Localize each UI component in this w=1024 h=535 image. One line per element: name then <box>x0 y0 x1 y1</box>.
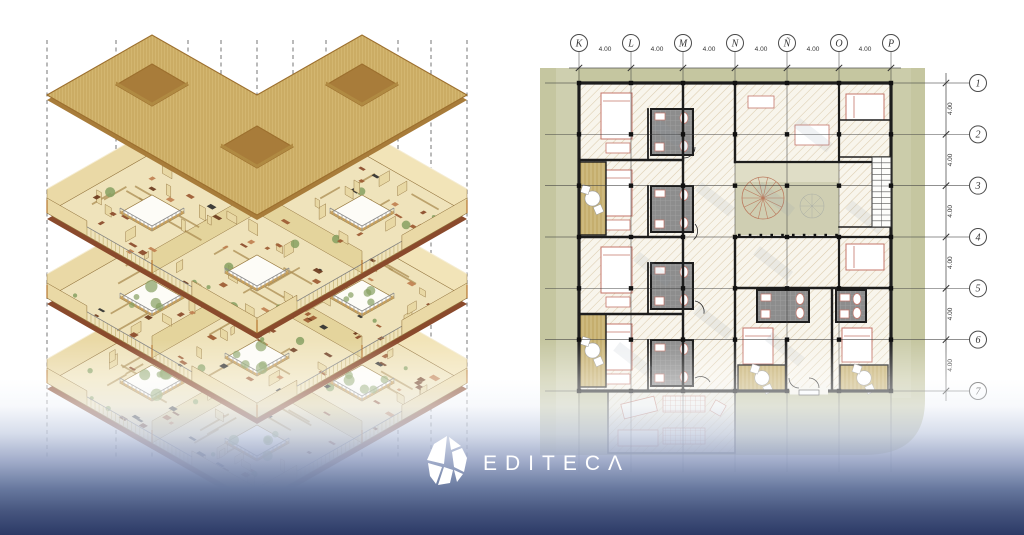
balcony-left-2 <box>579 314 606 387</box>
svg-text:4.00: 4.00 <box>651 46 664 53</box>
svg-text:4.00: 4.00 <box>859 46 872 53</box>
svg-text:L: L <box>627 38 634 49</box>
grid-bubble-column-Ñ: Ñ <box>779 35 796 52</box>
editeca-gem-icon <box>424 434 470 488</box>
svg-text:P: P <box>887 38 894 49</box>
grid-bubble-row-5: 5 <box>970 280 987 297</box>
grid-bubble-column-K: K <box>571 35 588 52</box>
grid-bubbles-rows: 1234567 <box>970 75 987 400</box>
svg-text:O: O <box>835 38 842 49</box>
svg-text:Ñ: Ñ <box>783 37 792 49</box>
svg-text:4.00: 4.00 <box>947 205 954 218</box>
grid-bubble-column-P: P <box>883 35 900 52</box>
editeca-logo: EDITECΛ <box>424 434 630 488</box>
svg-text:4.00: 4.00 <box>947 153 954 166</box>
svg-text:4.00: 4.00 <box>703 46 716 53</box>
svg-text:1: 1 <box>976 78 981 89</box>
svg-text:4.00: 4.00 <box>755 46 768 53</box>
svg-text:K: K <box>575 38 584 49</box>
svg-text:4.00: 4.00 <box>599 46 612 53</box>
svg-text:5: 5 <box>976 284 981 295</box>
svg-text:2: 2 <box>976 130 981 141</box>
svg-text:4.00: 4.00 <box>947 359 954 372</box>
grid-bubble-row-6: 6 <box>970 331 987 348</box>
grid-bubble-row-7: 7 <box>970 382 987 399</box>
svg-text:3: 3 <box>975 181 981 192</box>
grid-bubble-row-2: 2 <box>970 126 987 143</box>
grid-bubble-column-M: M <box>675 35 692 52</box>
brand-wordmark: EDITECΛ <box>483 449 630 474</box>
svg-text:4: 4 <box>976 232 981 243</box>
svg-text:4.00: 4.00 <box>807 46 820 53</box>
grid-bubble-row-1: 1 <box>970 75 987 92</box>
grid-bubble-column-L: L <box>623 35 640 52</box>
svg-text:N: N <box>731 38 740 49</box>
balcony-left-1 <box>579 162 606 235</box>
straight-staircase <box>872 157 891 227</box>
grid-bubble-column-O: O <box>831 35 848 52</box>
svg-text:4.00: 4.00 <box>947 102 954 115</box>
grid-bubble-column-N: N <box>727 35 744 52</box>
svg-text:4.00: 4.00 <box>947 307 954 320</box>
grid-bubble-row-4: 4 <box>970 228 987 245</box>
grid-bubbles-columns: KLMNÑOP <box>571 35 900 52</box>
architecture-poster: 4.004.004.004.004.004.004.004.004.004.00… <box>0 0 1024 535</box>
svg-text:M: M <box>678 38 688 49</box>
svg-text:4.00: 4.00 <box>947 256 954 269</box>
svg-text:6: 6 <box>976 335 981 346</box>
grid-bubble-row-3: 3 <box>970 177 987 194</box>
secondary-stair-fan <box>800 194 824 218</box>
